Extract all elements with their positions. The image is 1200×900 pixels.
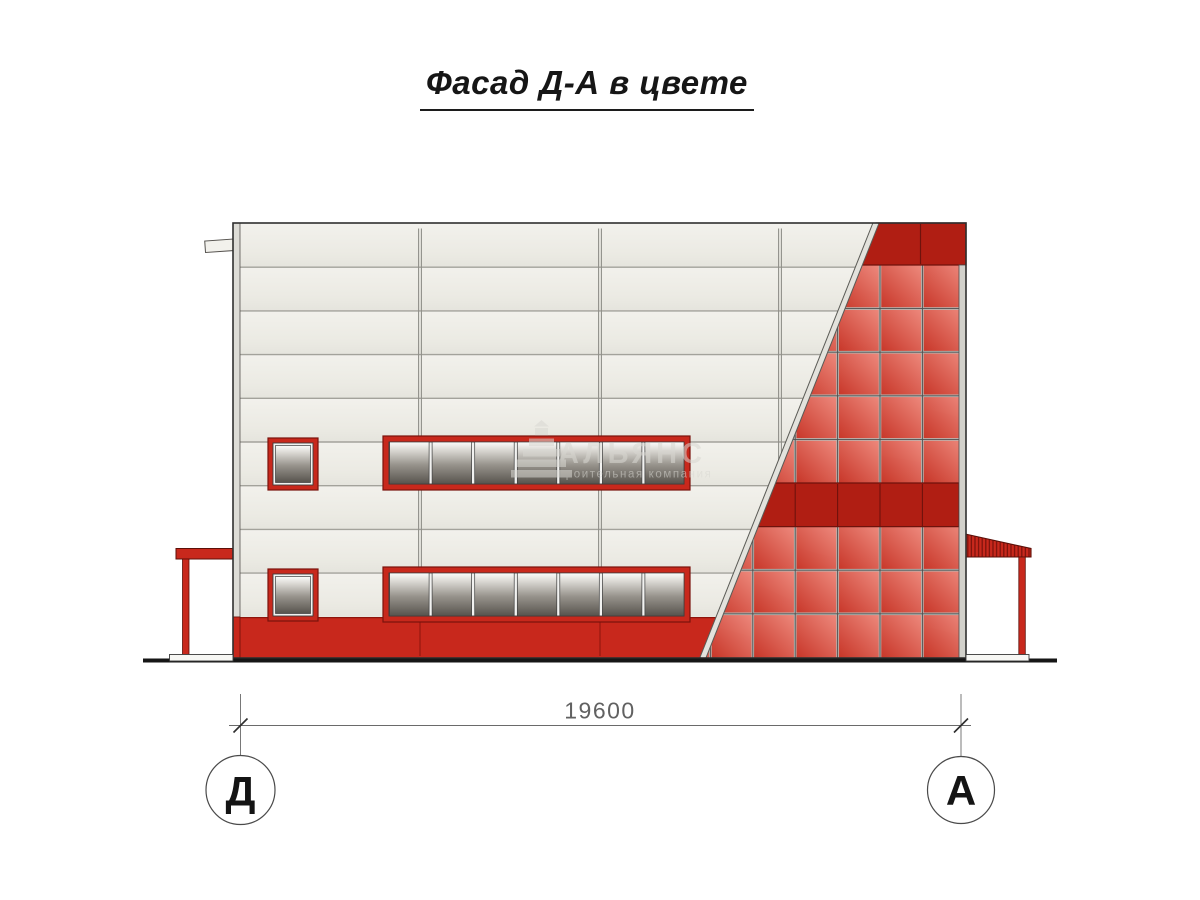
footing-plate-right	[966, 655, 1029, 662]
facade-elevation-drawing: АЛЬЯНС строительная компания	[0, 0, 1200, 900]
gutter-outlet	[205, 239, 235, 252]
spandrel-band-middle	[755, 483, 959, 527]
corner-strip-right	[959, 265, 966, 658]
dimension-value: 19600	[564, 698, 635, 724]
footing-plate-left	[170, 655, 234, 662]
watermark-brand: АЛЬЯНС	[558, 438, 706, 470]
axis-marker-right: А	[928, 757, 995, 824]
window-ribbon-lower	[383, 567, 690, 622]
plinth-band	[233, 617, 718, 658]
window-square-lower	[268, 569, 318, 621]
canopy-left	[176, 549, 236, 656]
axis-label-right: А	[946, 767, 976, 814]
drawing-sheet: Фасад Д-А в цвете	[0, 0, 1200, 900]
axis-label-left: Д	[226, 768, 256, 815]
dimension-line: 19600	[229, 694, 971, 756]
window-square-upper	[268, 438, 318, 490]
axis-marker-left: Д	[206, 756, 275, 825]
ground-line	[143, 659, 1057, 663]
watermark-tagline: строительная компания	[552, 469, 713, 481]
canopy-right	[963, 534, 1031, 656]
